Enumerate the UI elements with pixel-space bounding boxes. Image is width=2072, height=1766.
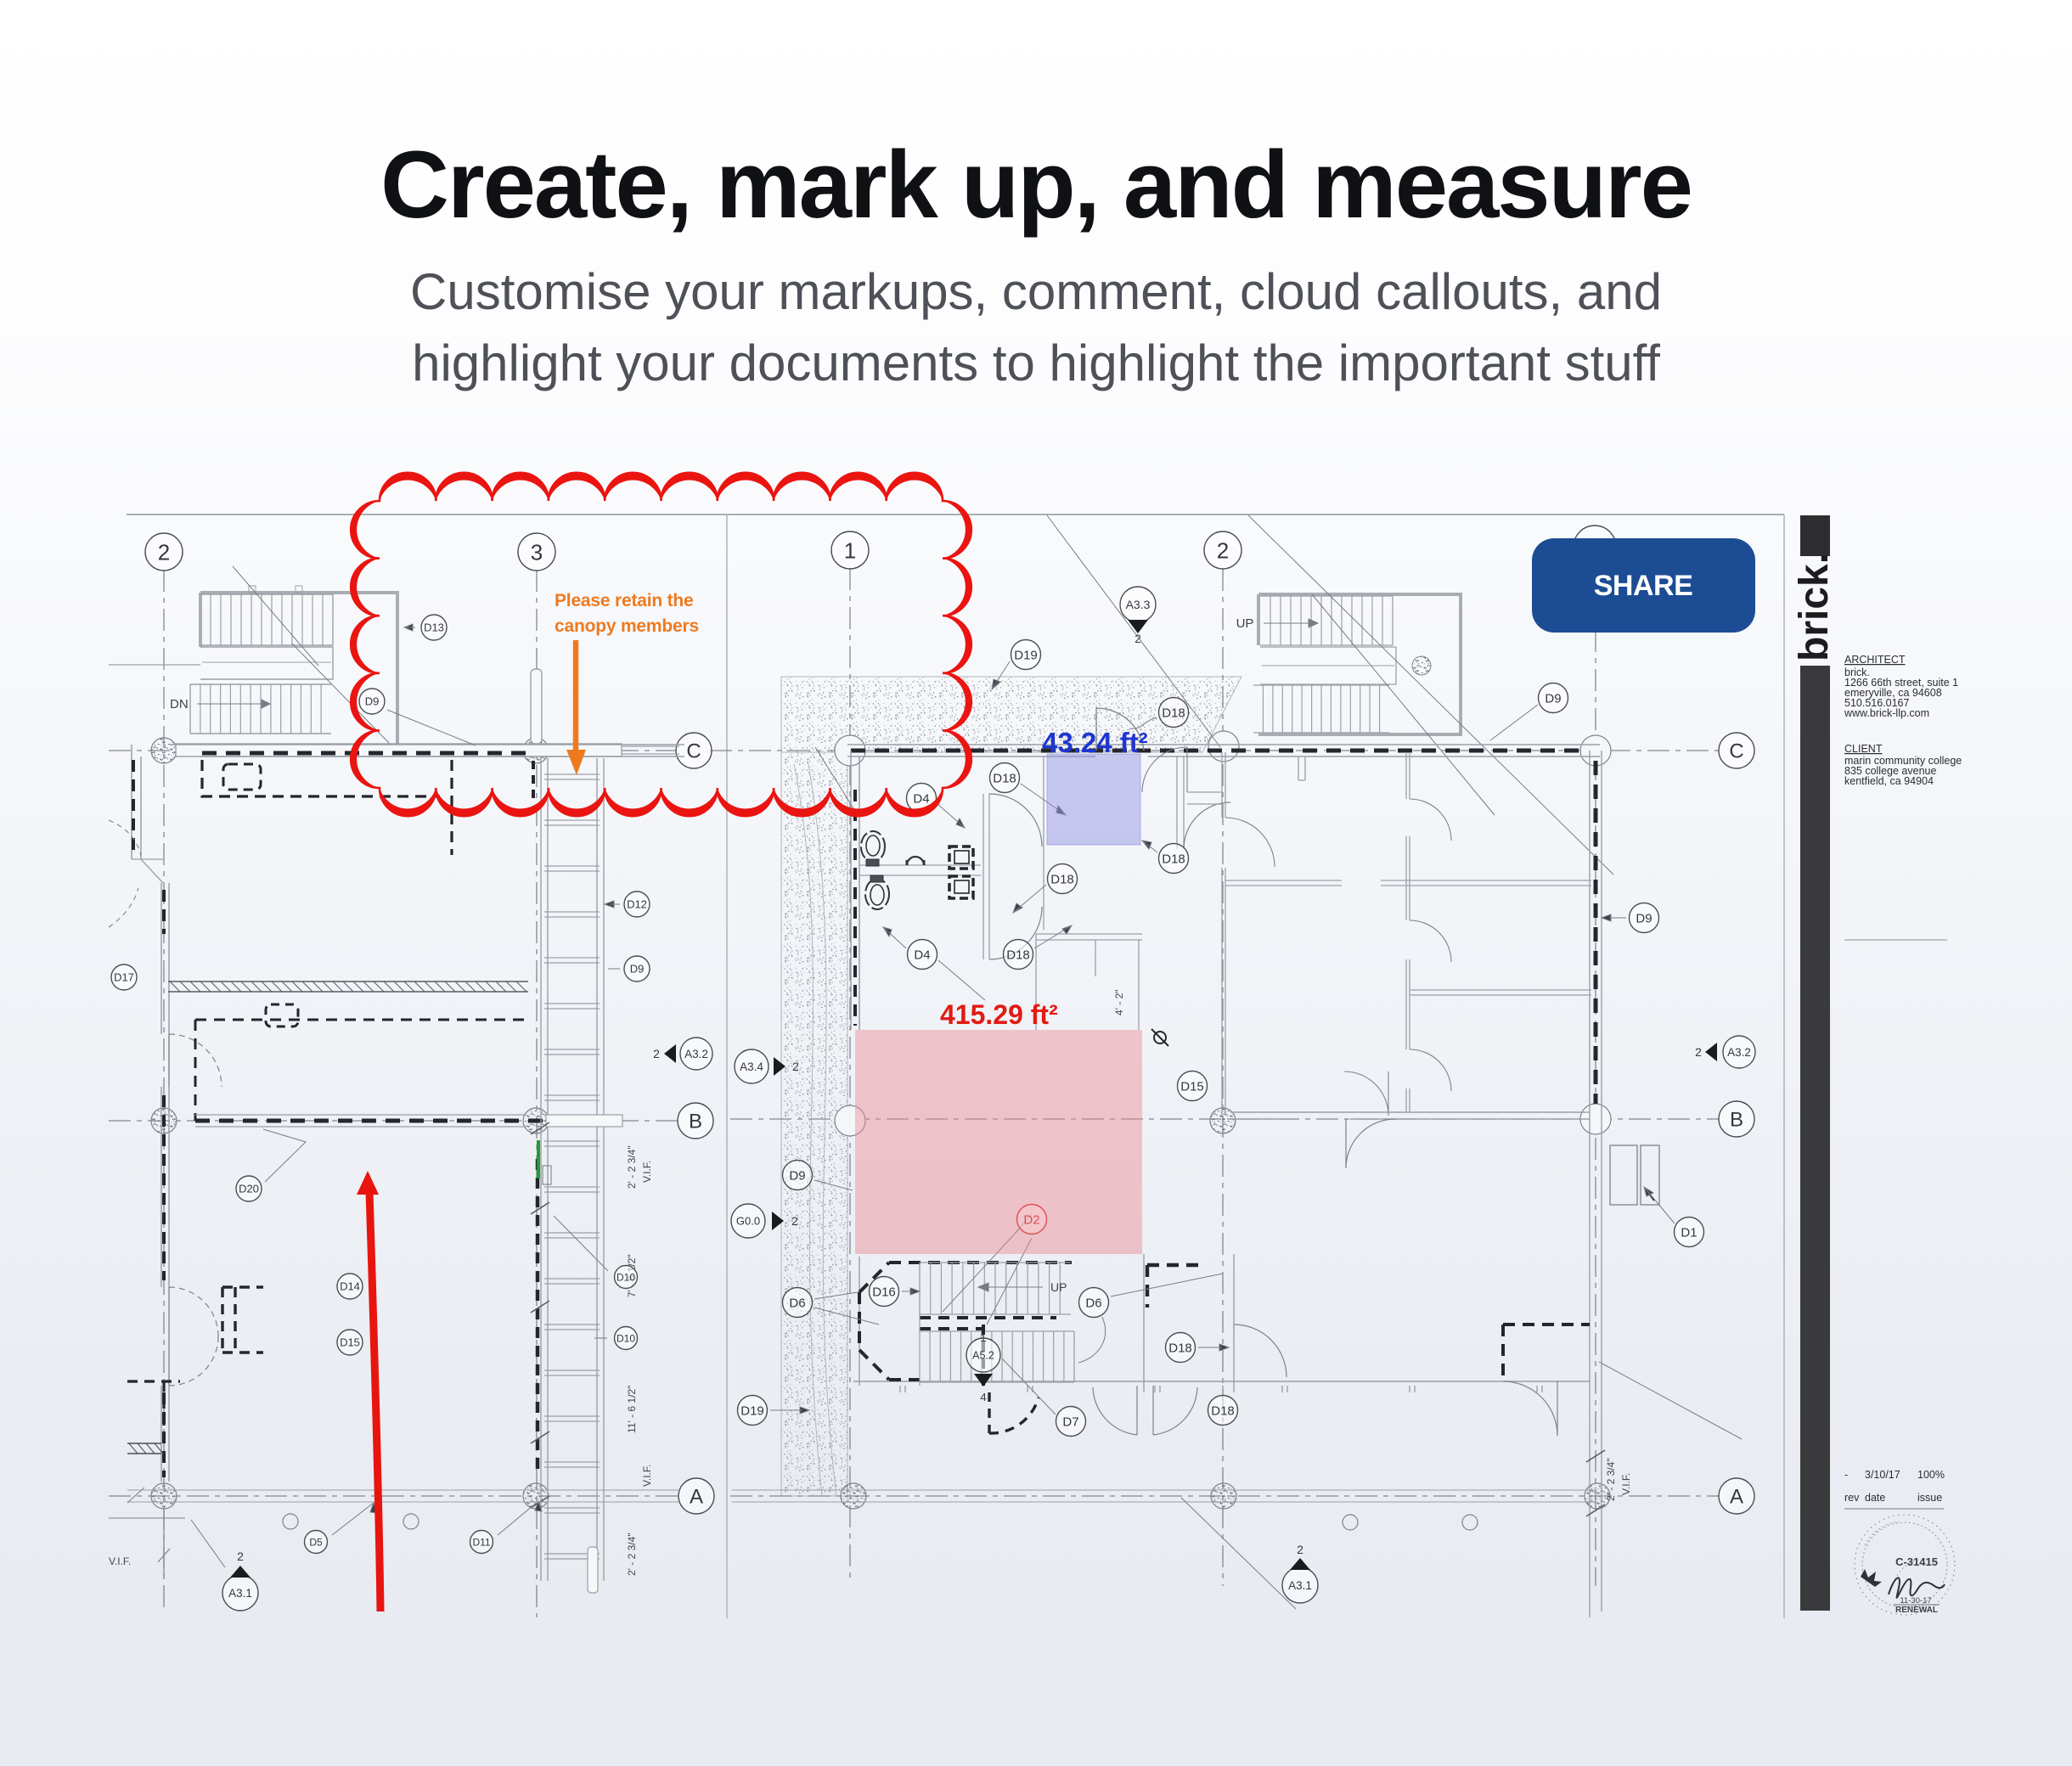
svg-text:D18: D18 bbox=[1006, 948, 1030, 962]
svg-text:A3.2: A3.2 bbox=[684, 1048, 708, 1060]
svg-text:D18: D18 bbox=[1211, 1403, 1235, 1418]
svg-text:UP: UP bbox=[1050, 1280, 1067, 1294]
svg-text:canopy members: canopy members bbox=[555, 616, 699, 636]
svg-text:D12: D12 bbox=[627, 898, 647, 911]
svg-text:V.I.F.: V.I.F. bbox=[109, 1555, 131, 1567]
svg-text:ARCHITECT: ARCHITECT bbox=[1844, 654, 1906, 666]
svg-text:2' - 2 3/4": 2' - 2 3/4" bbox=[1605, 1458, 1617, 1501]
svg-text:RENEWAL: RENEWAL bbox=[1895, 1606, 1938, 1615]
svg-text:11' - 6 1/2": 11' - 6 1/2" bbox=[626, 1386, 638, 1433]
svg-text:D9: D9 bbox=[789, 1168, 805, 1183]
svg-text:D14: D14 bbox=[340, 1280, 360, 1293]
svg-text:D20: D20 bbox=[239, 1183, 259, 1195]
svg-text:2: 2 bbox=[1695, 1045, 1702, 1059]
svg-text:11-30-17: 11-30-17 bbox=[1900, 1596, 1931, 1606]
svg-text:D6: D6 bbox=[789, 1296, 805, 1310]
svg-text:D9: D9 bbox=[630, 963, 645, 976]
svg-text:1: 1 bbox=[980, 1331, 986, 1344]
svg-text:2: 2 bbox=[1297, 1543, 1303, 1556]
svg-text:date: date bbox=[1865, 1492, 1885, 1504]
svg-text:D11: D11 bbox=[472, 1536, 490, 1548]
svg-text:A3.3: A3.3 bbox=[1126, 598, 1151, 611]
svg-text:D17: D17 bbox=[114, 971, 134, 984]
svg-text:D10: D10 bbox=[617, 1332, 635, 1344]
svg-text:D4: D4 bbox=[914, 948, 930, 962]
svg-text:B: B bbox=[1730, 1109, 1743, 1132]
svg-text:A: A bbox=[690, 1486, 703, 1509]
svg-text:D5: D5 bbox=[309, 1536, 323, 1548]
svg-text:V.I.F.: V.I.F. bbox=[641, 1465, 653, 1487]
svg-text:V.I.F.: V.I.F. bbox=[1620, 1473, 1632, 1495]
svg-text:D7: D7 bbox=[1062, 1414, 1078, 1429]
svg-text:2: 2 bbox=[792, 1060, 799, 1073]
svg-text:Please retain the: Please retain the bbox=[555, 591, 694, 610]
svg-text:415.29 ft²: 415.29 ft² bbox=[940, 999, 1058, 1030]
svg-text:2: 2 bbox=[791, 1214, 798, 1228]
svg-text:D18: D18 bbox=[1162, 852, 1185, 866]
svg-text:D9: D9 bbox=[365, 695, 380, 708]
svg-text:A3.2: A3.2 bbox=[1727, 1046, 1751, 1059]
svg-text:D15: D15 bbox=[340, 1336, 360, 1349]
svg-text:V.I.F.: V.I.F. bbox=[641, 1161, 653, 1183]
svg-text:CLIENT: CLIENT bbox=[1844, 743, 1883, 755]
svg-text:A3.4: A3.4 bbox=[740, 1060, 763, 1073]
svg-text:D4: D4 bbox=[913, 791, 929, 806]
svg-text:UP: UP bbox=[1236, 616, 1254, 631]
svg-text:C: C bbox=[686, 740, 701, 763]
svg-text:4' - 2": 4' - 2" bbox=[1113, 989, 1125, 1015]
svg-text:rev: rev bbox=[1844, 1492, 1860, 1504]
svg-text:43.24 ft²: 43.24 ft² bbox=[1042, 727, 1148, 758]
svg-text:D18: D18 bbox=[1050, 872, 1074, 886]
svg-text:A3.1: A3.1 bbox=[1288, 1579, 1312, 1592]
svg-text:SHARE: SHARE bbox=[1594, 570, 1693, 602]
svg-text:D18: D18 bbox=[993, 771, 1016, 785]
svg-text:D18: D18 bbox=[1162, 706, 1185, 720]
svg-text:D15: D15 bbox=[1180, 1079, 1204, 1094]
svg-text:D18: D18 bbox=[1168, 1341, 1192, 1355]
svg-text:www.brick-llp.com: www.brick-llp.com bbox=[1844, 707, 1929, 719]
svg-text:4: 4 bbox=[980, 1391, 986, 1403]
svg-text:D10: D10 bbox=[617, 1271, 635, 1283]
svg-text:-: - bbox=[1844, 1469, 1848, 1481]
svg-text:B: B bbox=[689, 1111, 702, 1133]
svg-text:D1: D1 bbox=[1681, 1225, 1697, 1240]
svg-text:issue: issue bbox=[1917, 1492, 1942, 1504]
svg-text:2' - 2 3/4": 2' - 2 3/4" bbox=[626, 1145, 638, 1189]
svg-text:2: 2 bbox=[237, 1549, 244, 1563]
svg-text:D16: D16 bbox=[872, 1285, 896, 1299]
svg-text:C: C bbox=[1729, 740, 1743, 763]
svg-text:100%: 100% bbox=[1917, 1469, 1945, 1481]
svg-text:A3.1: A3.1 bbox=[228, 1587, 252, 1600]
svg-text:D6: D6 bbox=[1085, 1296, 1101, 1310]
svg-text:2' - 2 3/4": 2' - 2 3/4" bbox=[626, 1533, 638, 1576]
svg-text:3/10/17: 3/10/17 bbox=[1865, 1469, 1900, 1481]
svg-text:brick.: brick. bbox=[1792, 553, 1837, 661]
svg-text:A5.2: A5.2 bbox=[972, 1350, 994, 1362]
svg-text:2: 2 bbox=[653, 1047, 660, 1060]
svg-text:2: 2 bbox=[1135, 633, 1141, 645]
svg-text:C-31415: C-31415 bbox=[1895, 1555, 1938, 1568]
svg-text:DN: DN bbox=[170, 697, 189, 711]
svg-text:D13: D13 bbox=[424, 621, 444, 634]
svg-text:D19: D19 bbox=[740, 1403, 764, 1418]
svg-text:2: 2 bbox=[158, 539, 170, 565]
svg-text:1: 1 bbox=[844, 537, 856, 563]
svg-text:3: 3 bbox=[531, 539, 543, 565]
svg-text:A: A bbox=[1730, 1486, 1743, 1509]
svg-text:G0.0: G0.0 bbox=[736, 1215, 760, 1228]
svg-text:D9: D9 bbox=[1545, 691, 1561, 706]
svg-text:kentfield, ca 94904: kentfield, ca 94904 bbox=[1844, 775, 1934, 787]
svg-text:2: 2 bbox=[1217, 537, 1229, 563]
svg-text:D9: D9 bbox=[1636, 911, 1652, 925]
svg-text:D19: D19 bbox=[1014, 648, 1038, 662]
